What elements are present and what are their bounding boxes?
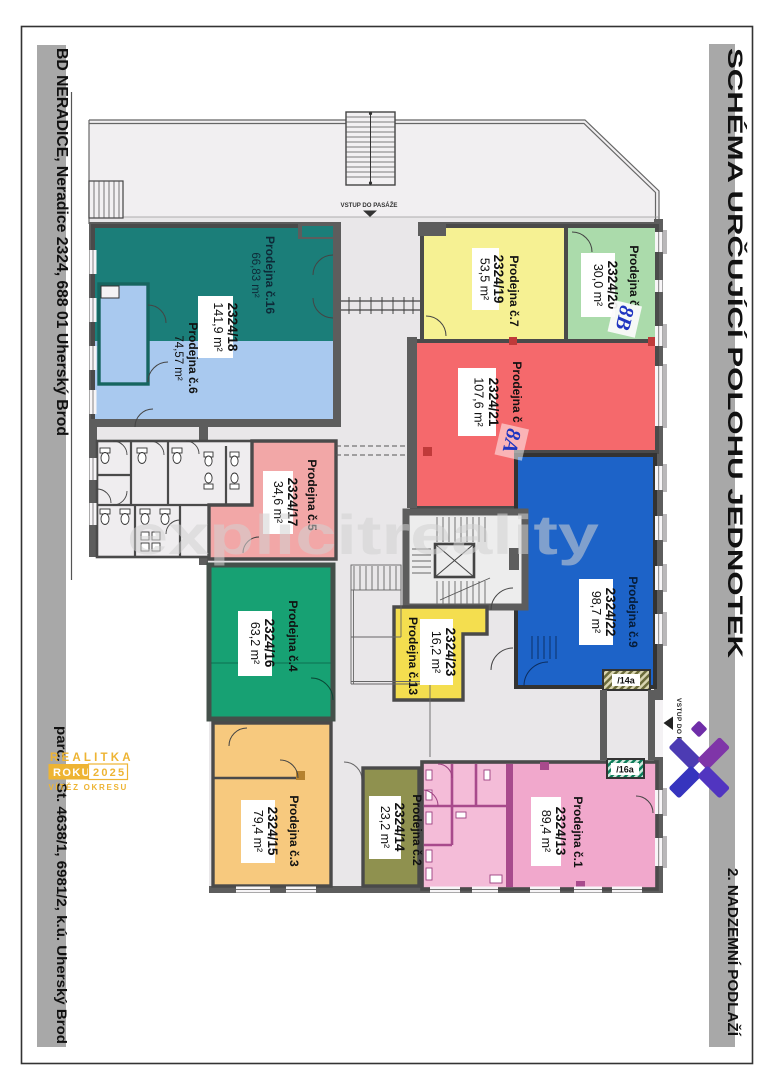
svg-text:ROKU: ROKU [53,767,91,779]
svg-text:Prodejna č.16: Prodejna č.16 [263,236,277,314]
svg-text:Prodejna č: Prodejna č [627,245,641,307]
svg-text:/16a: /16a [616,765,635,775]
svg-text:2324/13: 2324/13 [553,807,568,856]
svg-text:Prodejna č.13: Prodejna č.13 [406,617,420,695]
svg-text:2324/14: 2324/14 [392,803,407,852]
svg-text:23,2 m²: 23,2 m² [378,806,392,848]
svg-text:2324/22: 2324/22 [603,588,618,637]
svg-text:141,9 m²: 141,9 m² [211,302,225,351]
svg-text:BD NERADICE, Neradice 2324, 68: BD NERADICE, Neradice 2324, 688 01 Uhers… [53,48,70,436]
svg-text:Prodejna č.3: Prodejna č.3 [287,795,301,867]
svg-text:79,4 m²: 79,4 m² [251,810,265,852]
svg-text:2324/18: 2324/18 [225,303,240,352]
svg-text:74,57 m²: 74,57 m² [172,335,184,381]
svg-text:2. NADZEMNÍ PODLAŽÍ: 2. NADZEMNÍ PODLAŽÍ [724,868,742,1037]
svg-text:/14a: /14a [617,676,636,686]
svg-text:98,7 m²: 98,7 m² [589,591,603,633]
svg-text:16,2 m²: 16,2 m² [429,631,443,673]
svg-text:VÍTĚZ OKRESU: VÍTĚZ OKRESU [49,783,129,792]
svg-text:30,0 m²: 30,0 m² [591,264,605,306]
svg-text:Prodejna č.2: Prodejna č.2 [410,794,424,866]
svg-text:Prodejna č.6: Prodejna č.6 [186,322,200,394]
svg-text:SCHÉMA URČUJÍCÍ POLOHU JEDNOTE: SCHÉMA URČUJÍCÍ POLOHU JEDNOTEK [723,48,748,659]
svg-text:explicitreality: explicitreality [127,503,599,566]
svg-text:Prodejna č.1: Prodejna č.1 [571,796,585,868]
svg-text:Prodejna č.4: Prodejna č.4 [286,600,300,672]
svg-text:Prodejna č.7: Prodejna č.7 [507,255,521,327]
svg-text:89,4 m²: 89,4 m² [539,810,553,852]
svg-text:REALITKA: REALITKA [50,752,134,764]
svg-text:53,5 m²: 53,5 m² [478,258,492,300]
svg-text:Prodejna č: Prodejna č [510,361,524,423]
svg-text:63,2 m²: 63,2 m² [248,622,262,664]
svg-text:66,83 m²: 66,83 m² [249,252,261,298]
svg-text:2324/23: 2324/23 [443,628,458,677]
svg-text:VSTUP DO PASÁŽE: VSTUP DO PASÁŽE [341,201,398,209]
svg-text:2324/16: 2324/16 [262,619,277,668]
svg-text:2324/19: 2324/19 [491,255,506,304]
svg-text:2025: 2025 [93,767,126,779]
svg-text:107,6 m²: 107,6 m² [472,377,486,426]
svg-text:2324/21: 2324/21 [486,378,501,427]
svg-text:Prodejna č.9: Prodejna č.9 [626,576,640,648]
svg-text:2324/15: 2324/15 [265,807,280,856]
